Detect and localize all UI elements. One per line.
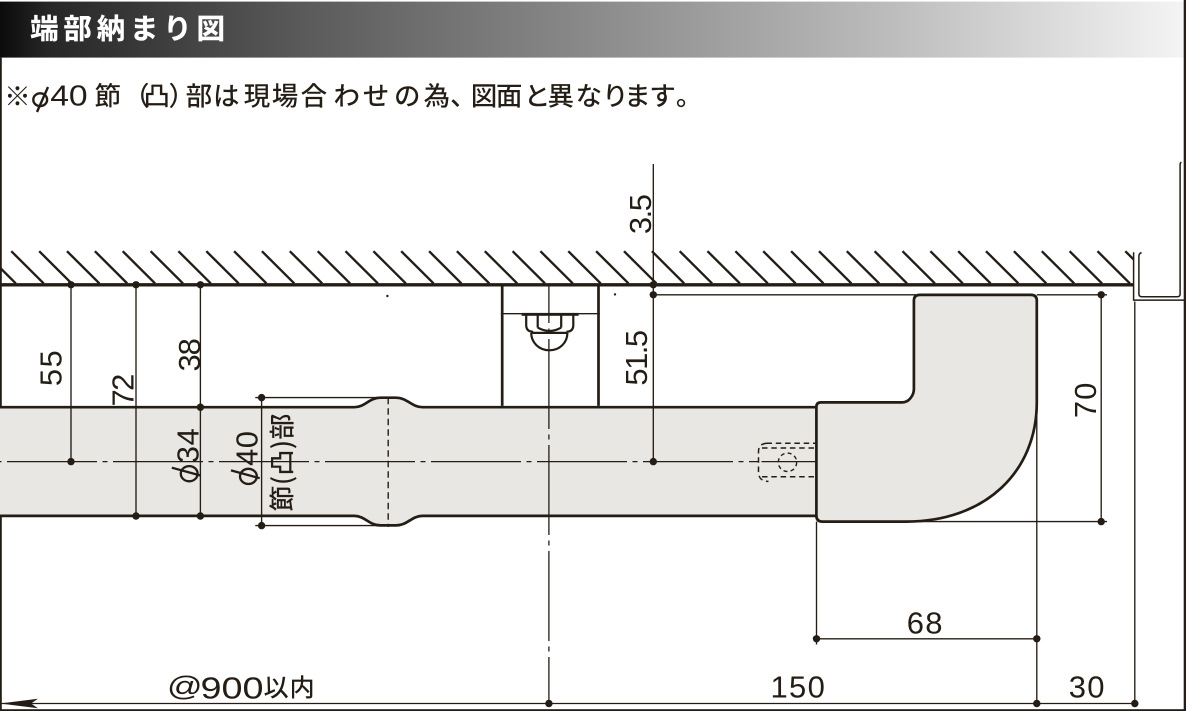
svg-text:55: 55 xyxy=(34,349,69,386)
svg-text:40: 40 xyxy=(230,431,265,466)
svg-text:3.5: 3.5 xyxy=(623,195,658,234)
svg-text:40: 40 xyxy=(50,80,87,112)
svg-text:70: 70 xyxy=(1068,382,1103,418)
svg-text:72: 72 xyxy=(106,375,141,407)
svg-text:150: 150 xyxy=(770,670,826,705)
svg-text:30: 30 xyxy=(1069,670,1106,705)
svg-text:@: @ xyxy=(167,670,203,702)
svg-text:68: 68 xyxy=(907,606,944,641)
svg-text:900: 900 xyxy=(201,671,264,705)
svg-text:38: 38 xyxy=(172,339,207,371)
svg-text:34: 34 xyxy=(170,428,205,463)
svg-text:51.5: 51.5 xyxy=(619,331,654,386)
